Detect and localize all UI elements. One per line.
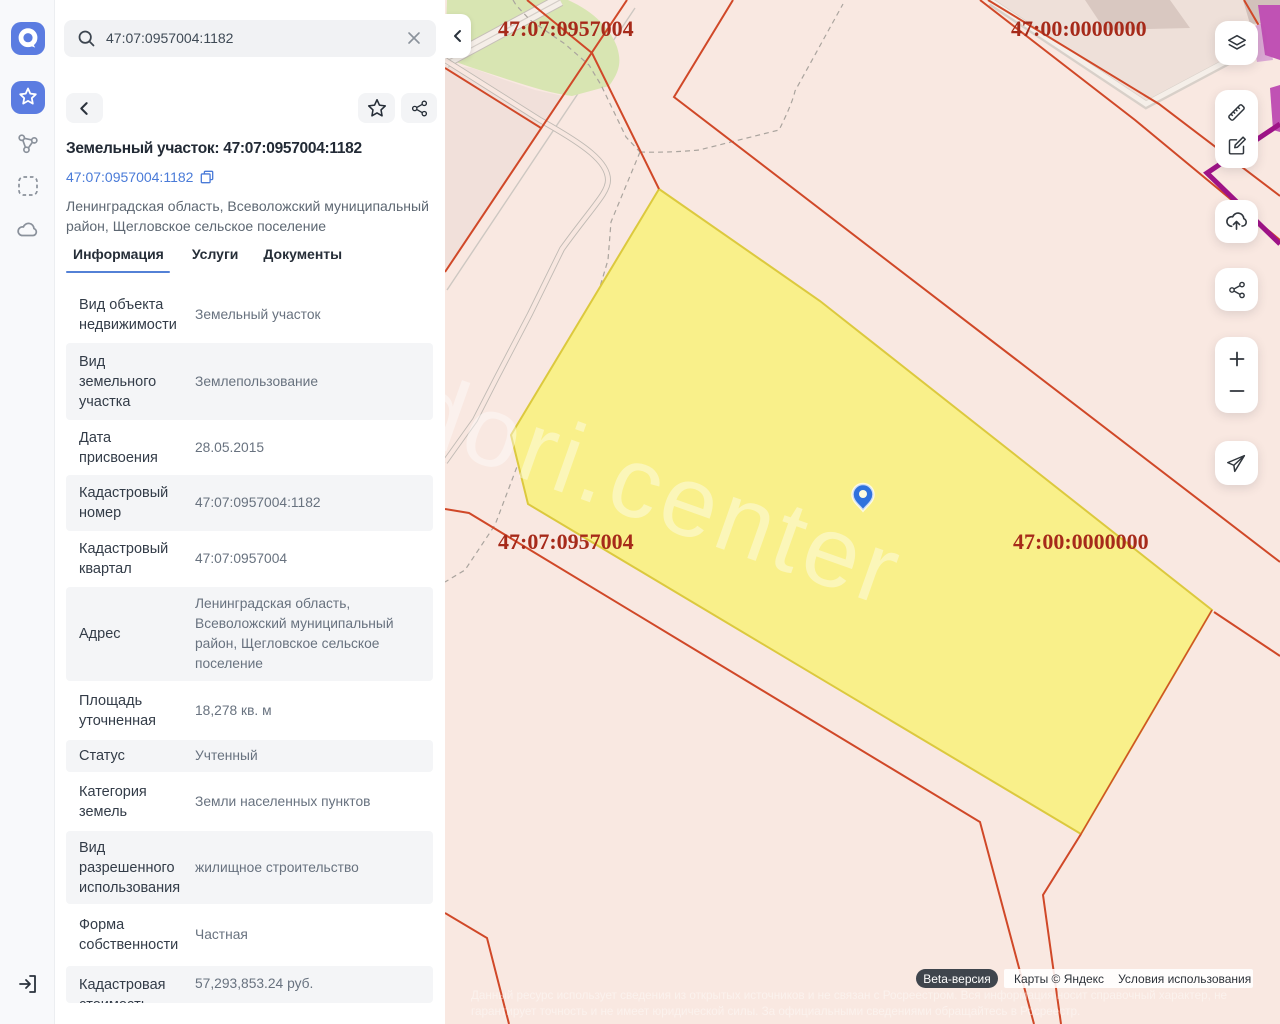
svg-text:47:00:0000000: 47:00:0000000 xyxy=(1013,529,1149,554)
svg-text:47:07:0957004: 47:07:0957004 xyxy=(498,16,634,41)
svg-text:47:07:0957004: 47:07:0957004 xyxy=(498,529,634,554)
svg-text:47:00:0000000: 47:00:0000000 xyxy=(1011,16,1147,41)
